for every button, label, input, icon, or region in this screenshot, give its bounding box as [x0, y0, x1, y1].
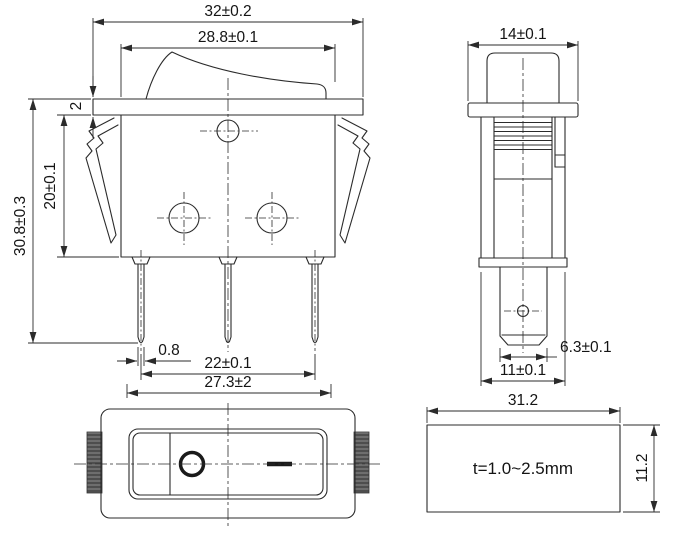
terminal-pin-left	[132, 250, 150, 351]
dim-label-terminal-thickness: 0.8	[158, 342, 180, 359]
mounting-clip-right	[338, 118, 370, 243]
dim-label-flange-thickness: 2	[68, 102, 85, 111]
panel-thickness-note: t=1.0~2.5mm	[473, 459, 573, 478]
dim-terminal-thickness: 0.8	[117, 342, 191, 366]
dim-label-overall-width: 32±0.2	[204, 3, 251, 20]
dim-label-cutout-height: 11.2	[634, 453, 651, 482]
terminal-pin-right	[306, 250, 324, 351]
front-view: 32±0.2 28.8±0.1 2 30.8±0.3 20±0.1	[12, 3, 370, 398]
rocker-switch-dimension-drawing: 32±0.2 28.8±0.1 2 30.8±0.3 20±0.1	[0, 0, 687, 541]
dim-label-side-body-width: 11±0.1	[500, 362, 546, 379]
dim-label-clip-span: 27.3±2	[204, 374, 251, 391]
dim-label-terminal-width: 6.3±0.1	[560, 339, 612, 356]
technical-drawing-page: 32±0.2 28.8±0.1 2 30.8±0.3 20±0.1	[0, 0, 687, 541]
dim-label-side-overall-width: 14±0.1	[499, 26, 546, 43]
grip-clip-right	[354, 432, 369, 493]
upper-rivet-hole	[200, 120, 258, 142]
dim-label-cutout-width: 31.2	[508, 392, 538, 409]
dim-cutout-width: 31.2	[427, 392, 620, 423]
dim-label-terminal-pitch: 22±0.1	[204, 355, 251, 372]
dim-cutout-height: 11.2	[623, 425, 660, 512]
dim-terminal-width: 6.3±0.1	[500, 339, 612, 362]
lower-rivet-hole-left	[157, 192, 211, 245]
top-view	[74, 403, 382, 526]
dim-clip-span: 27.3±2	[127, 374, 331, 398]
grip-clip-left	[87, 432, 102, 493]
side-view: 14±0.1 6.3±0.1 11±0.1	[468, 26, 612, 386]
dim-label-overall-height: 30.8±0.3	[12, 196, 29, 256]
mounting-clip-left	[86, 118, 118, 243]
dim-label-bezel-width: 28.8±0.1	[198, 29, 258, 46]
panel-cutout-view: t=1.0~2.5mm 31.2 11.2	[427, 392, 660, 512]
rocker-actuator-profile	[146, 52, 326, 99]
dim-flange-thickness: 2	[68, 76, 93, 138]
dim-overall-height: 30.8±0.3	[12, 99, 138, 343]
latch-detail	[555, 117, 565, 167]
lower-rivet-hole-right	[245, 192, 299, 245]
dim-body-height: 20±0.1	[42, 115, 119, 257]
dim-label-body-height: 20±0.1	[42, 162, 59, 209]
